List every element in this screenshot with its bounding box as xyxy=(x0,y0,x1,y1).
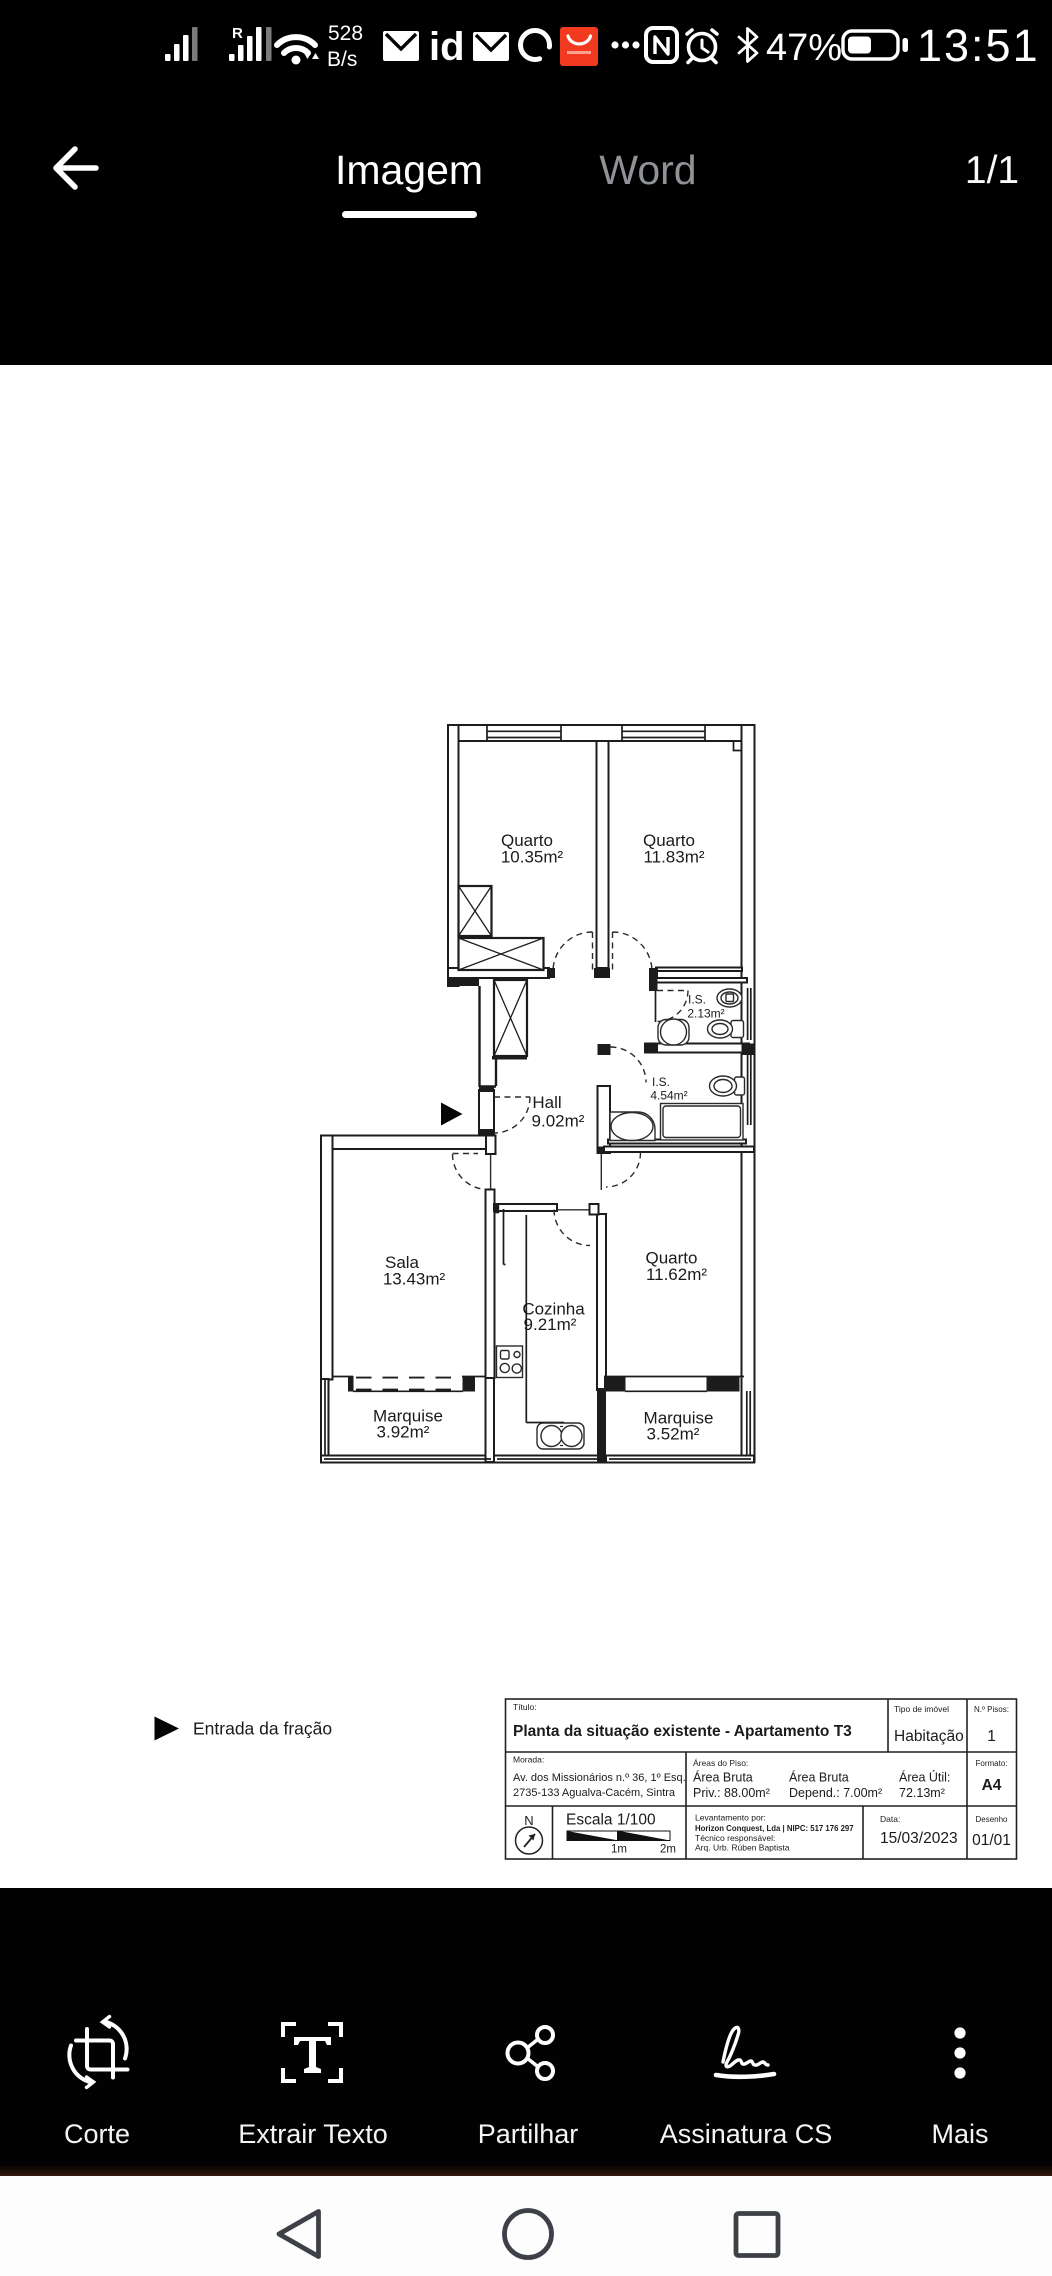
svg-text:Técnico responsável:: Técnico responsável: xyxy=(695,1833,775,1843)
svg-text:Formato:: Formato: xyxy=(975,1759,1007,1768)
svg-text:Arq. Urb. Rúben Baptista: Arq. Urb. Rúben Baptista xyxy=(695,1843,790,1853)
svg-text:11.62m²: 11.62m² xyxy=(646,1265,707,1284)
svg-text:Priv.: 88.00m²: Priv.: 88.00m² xyxy=(693,1786,770,1800)
svg-text:2m: 2m xyxy=(660,1844,676,1856)
svg-text:2.13m²: 2.13m² xyxy=(687,1007,724,1021)
svg-text:Morada:: Morada: xyxy=(513,1755,544,1765)
svg-text:Tipo de imóvel: Tipo de imóvel xyxy=(894,1704,949,1714)
svg-text:528: 528 xyxy=(328,22,363,45)
svg-text:1/1: 1/1 xyxy=(965,149,1019,192)
svg-text:47%: 47% xyxy=(766,27,842,69)
svg-text:Desenho: Desenho xyxy=(975,1815,1008,1824)
svg-text:1: 1 xyxy=(987,1728,996,1745)
svg-text:13.43m²: 13.43m² xyxy=(383,1270,446,1289)
svg-text:3.92m²: 3.92m² xyxy=(377,1423,430,1442)
svg-text:R: R xyxy=(232,25,243,42)
svg-text:Levantamento por:: Levantamento por: xyxy=(695,1813,766,1823)
svg-text:Título:: Título: xyxy=(513,1702,537,1712)
svg-text:1m: 1m xyxy=(611,1844,627,1856)
svg-text:Planta da situação existente -: Planta da situação existente - Apartamen… xyxy=(513,1723,852,1740)
svg-text:Habitação: Habitação xyxy=(894,1728,964,1745)
svg-text:B/s: B/s xyxy=(327,48,357,71)
svg-text:2735-133 Agualva-Cacém, Sintra: 2735-133 Agualva-Cacém, Sintra xyxy=(513,1787,676,1799)
svg-text:id: id xyxy=(429,25,465,69)
svg-text:15/03/2023: 15/03/2023 xyxy=(880,1830,958,1847)
svg-text:Áreas do Piso:: Áreas do Piso: xyxy=(693,1758,748,1768)
svg-text:10.35m²: 10.35m² xyxy=(501,848,564,867)
svg-text:01/01: 01/01 xyxy=(972,1832,1011,1849)
svg-text:I.S.: I.S. xyxy=(688,993,706,1007)
svg-text:3.52m²: 3.52m² xyxy=(647,1425,700,1444)
svg-text:11.83m²: 11.83m² xyxy=(643,848,704,867)
svg-text:13:51: 13:51 xyxy=(917,20,1040,71)
svg-text:Horizon Conquest, Lda | NIPC:: Horizon Conquest, Lda | NIPC: 517 176 29… xyxy=(695,1824,854,1833)
svg-text:4.54m²: 4.54m² xyxy=(650,1089,687,1103)
svg-text:Área Bruta: Área Bruta xyxy=(693,1770,753,1785)
svg-text:N: N xyxy=(524,1813,533,1828)
svg-text:9.21m²: 9.21m² xyxy=(524,1315,577,1334)
svg-text:A4: A4 xyxy=(982,1777,1002,1794)
svg-text:N.º Pisos:: N.º Pisos: xyxy=(974,1705,1009,1714)
svg-text:Área Bruta: Área Bruta xyxy=(789,1770,849,1785)
svg-text:Entrada da fração: Entrada da fração xyxy=(193,1719,332,1739)
svg-text:Imagem: Imagem xyxy=(335,147,483,193)
svg-text:Área Útil:: Área Útil: xyxy=(899,1770,950,1785)
svg-text:I.S.: I.S. xyxy=(652,1075,670,1089)
svg-text:Av. dos Missionários n.º 36, 1: Av. dos Missionários n.º 36, 1º Esq. xyxy=(513,1772,686,1784)
svg-text:Depend.: 7.00m²: Depend.: 7.00m² xyxy=(789,1786,882,1800)
svg-text:Escala 1/100: Escala 1/100 xyxy=(566,1812,656,1829)
svg-text:Data:: Data: xyxy=(880,1814,900,1824)
svg-text:72.13m²: 72.13m² xyxy=(899,1786,945,1800)
svg-text:Word: Word xyxy=(599,147,696,193)
svg-text:9.02m²: 9.02m² xyxy=(532,1112,585,1131)
svg-text:Hall: Hall xyxy=(532,1093,561,1112)
